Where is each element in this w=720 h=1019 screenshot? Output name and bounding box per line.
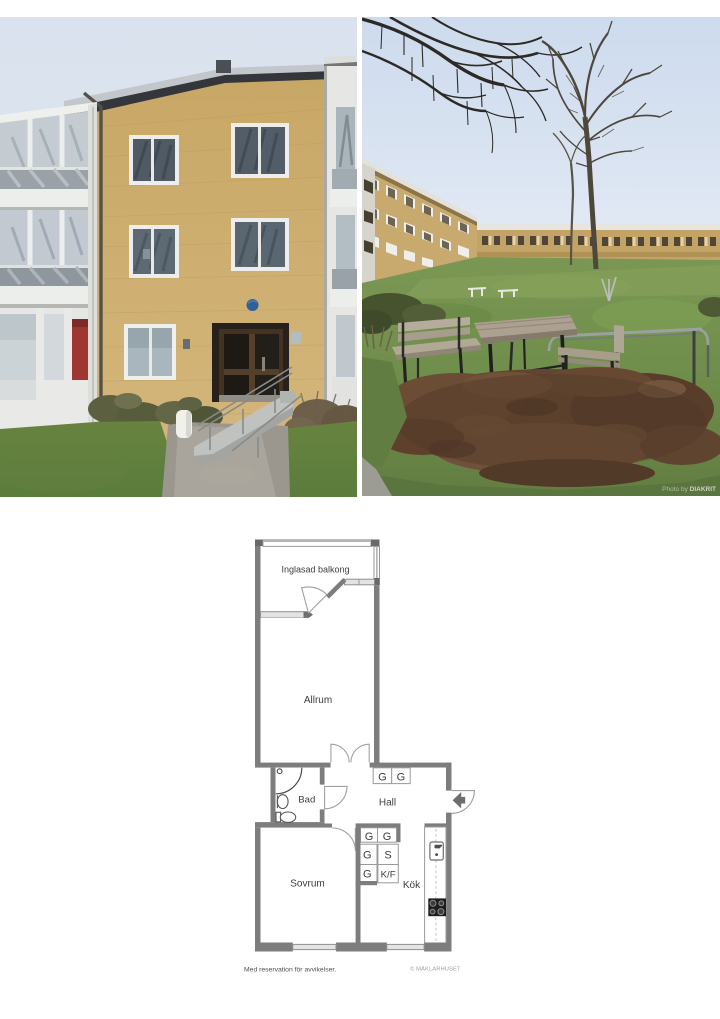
svg-text:Photo by DIAKRIT: Photo by DIAKRIT — [662, 486, 716, 493]
svg-text:G: G — [365, 831, 374, 843]
svg-text:K/F: K/F — [381, 870, 396, 881]
svg-text:G: G — [363, 869, 372, 881]
svg-text:Inglasad balkong: Inglasad balkong — [281, 565, 349, 575]
svg-text:Kök: Kök — [403, 880, 421, 891]
svg-text:Allrum: Allrum — [304, 695, 332, 706]
svg-text:G: G — [378, 772, 387, 784]
svg-text:© MÄKLARHUSET: © MÄKLARHUSET — [410, 966, 461, 973]
svg-text:Bad: Bad — [298, 795, 315, 806]
svg-text:G: G — [397, 772, 406, 784]
svg-text:Med reservation för avvikelser: Med reservation för avvikelser. — [244, 967, 336, 974]
svg-text:Sovrum: Sovrum — [290, 879, 324, 890]
svg-text:G: G — [383, 831, 392, 843]
svg-text:Hall: Hall — [379, 798, 396, 809]
svg-text:S: S — [384, 849, 391, 861]
svg-text:G: G — [363, 849, 372, 861]
